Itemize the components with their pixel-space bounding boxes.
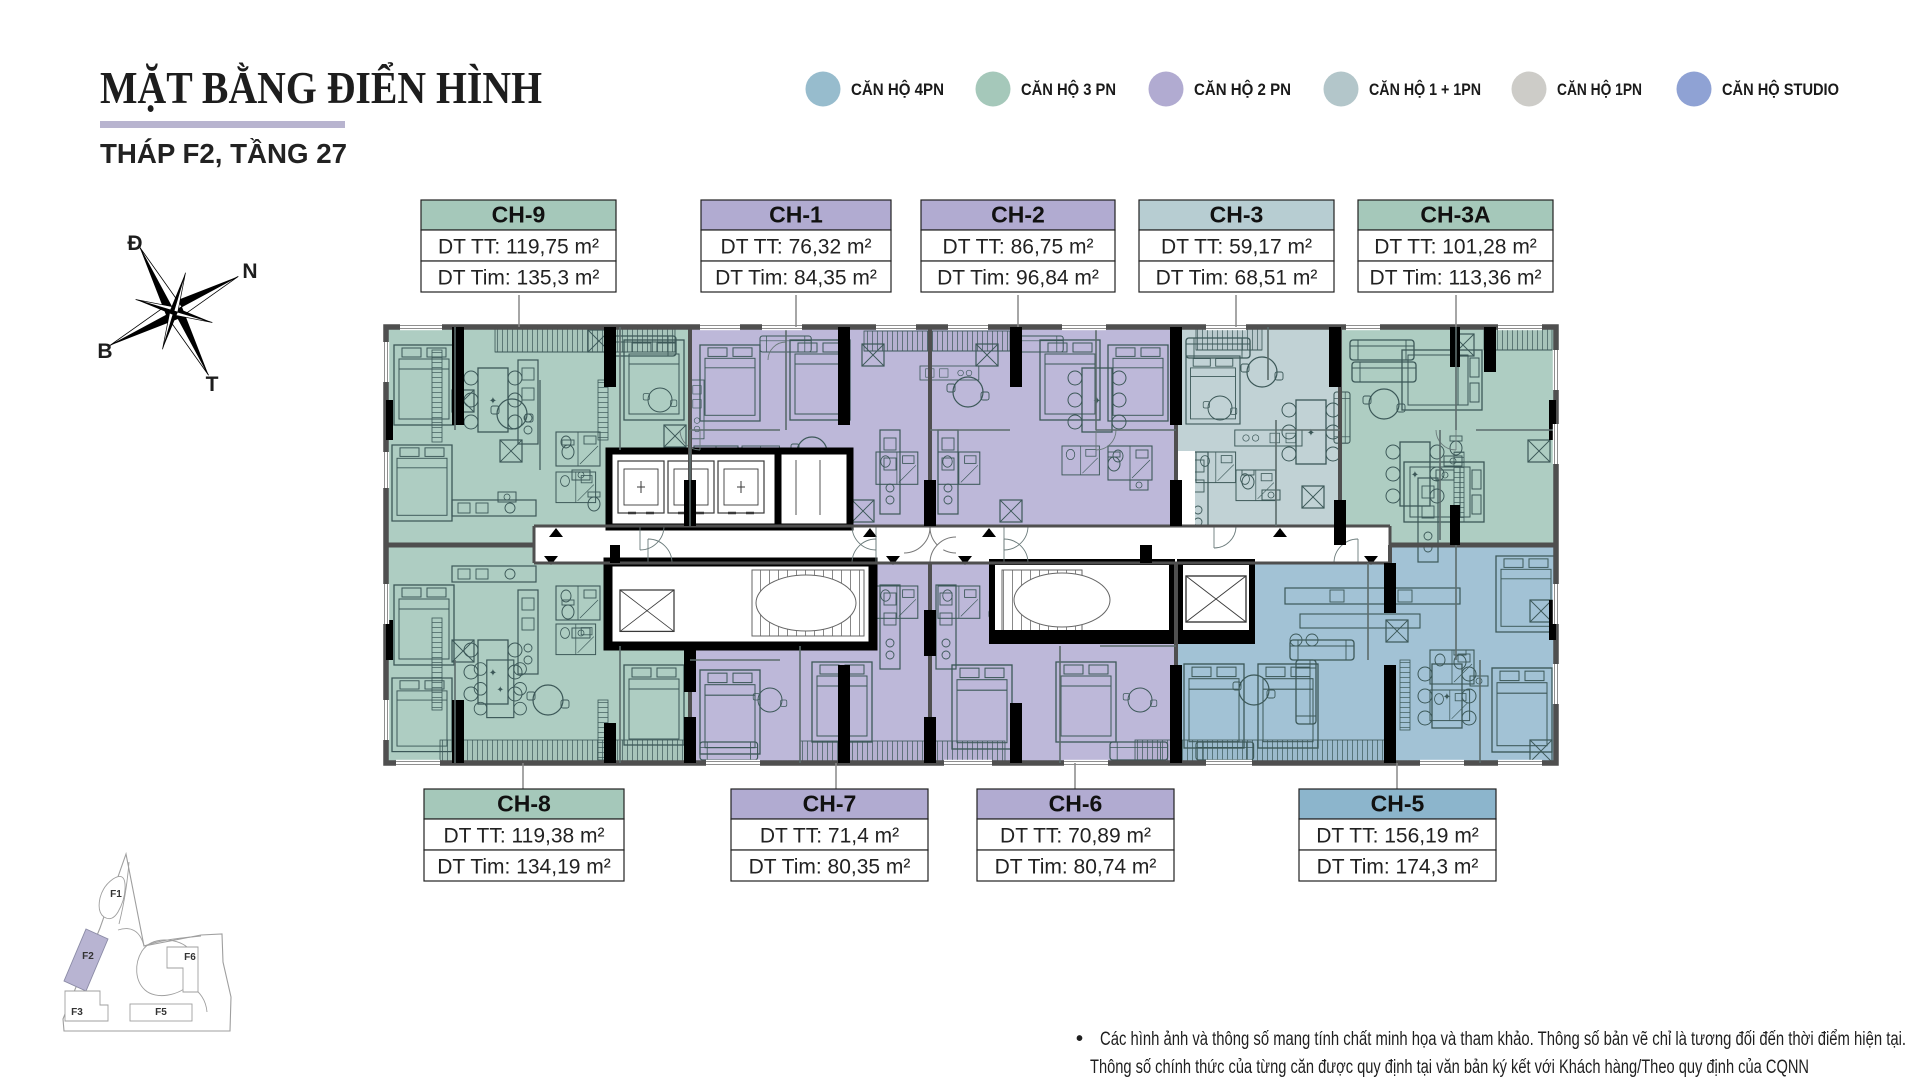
svg-text:DT Tim: 80,35 m²: DT Tim: 80,35 m²: [749, 856, 911, 879]
svg-text:CH-3A: CH-3A: [1420, 202, 1490, 228]
svg-text:F2: F2: [82, 951, 94, 962]
svg-text:F6: F6: [184, 952, 196, 963]
svg-text:F1: F1: [110, 889, 122, 900]
svg-text:MẶT BẰNG ĐIỂN HÌNH: MẶT BẰNG ĐIỂN HÌNH: [100, 61, 542, 113]
svg-text:F3: F3: [71, 1007, 83, 1018]
svg-text:CĂN HỘ 2 PN: CĂN HỘ 2 PN: [1194, 80, 1291, 99]
svg-text:F5: F5: [155, 1007, 167, 1018]
svg-text:DT Tim: 68,51 m²: DT Tim: 68,51 m²: [1156, 267, 1318, 290]
svg-text:DT Tim: 174,3 m²: DT Tim: 174,3 m²: [1317, 856, 1479, 879]
svg-text:DT Tim: 96,84 m²: DT Tim: 96,84 m²: [937, 267, 1099, 290]
svg-text:DT Tim: 84,35 m²: DT Tim: 84,35 m²: [715, 267, 877, 290]
svg-text:CH-7: CH-7: [803, 791, 857, 817]
svg-text:CH-3: CH-3: [1210, 202, 1264, 228]
svg-text:CĂN HỘ 3 PN: CĂN HỘ 3 PN: [1021, 80, 1116, 99]
svg-text:CĂN HỘ STUDIO: CĂN HỘ STUDIO: [1722, 80, 1839, 99]
svg-text:Thông số chính thức của từng c: Thông số chính thức của từng căn được qu…: [1090, 1057, 1809, 1078]
svg-text:DT Tim: 113,36 m²: DT Tim: 113,36 m²: [1370, 267, 1542, 290]
svg-text:•: •: [1076, 1028, 1083, 1050]
svg-text:Các hình ảnh và thông số mang: Các hình ảnh và thông số mang tính chất …: [1100, 1029, 1906, 1050]
svg-text:CH-6: CH-6: [1049, 791, 1103, 817]
svg-text:DT TT: 156,19 m²: DT TT: 156,19 m²: [1316, 825, 1479, 848]
svg-text:CĂN HỘ 4PN: CĂN HỘ 4PN: [851, 80, 944, 99]
svg-text:CĂN HỘ 1 + 1PN: CĂN HỘ 1 + 1PN: [1369, 80, 1481, 99]
svg-text:DT TT: 76,32 m²: DT TT: 76,32 m²: [721, 236, 872, 259]
svg-text:CH-8: CH-8: [497, 791, 551, 817]
svg-text:CH-2: CH-2: [991, 202, 1045, 228]
svg-text:DT TT: 70,89 m²: DT TT: 70,89 m²: [1000, 825, 1151, 848]
svg-text:B: B: [97, 340, 112, 363]
svg-text:T: T: [206, 373, 219, 396]
svg-text:DT TT: 71,4 m²: DT TT: 71,4 m²: [760, 825, 899, 848]
svg-text:DT Tim: 134,19 m²: DT Tim: 134,19 m²: [437, 856, 611, 879]
svg-text:CH-9: CH-9: [492, 202, 546, 228]
svg-text:DT TT: 59,17 m²: DT TT: 59,17 m²: [1161, 236, 1312, 259]
svg-text:DT TT: 119,38 m²: DT TT: 119,38 m²: [443, 825, 604, 848]
svg-text:N: N: [242, 260, 257, 283]
svg-text:CH-5: CH-5: [1371, 791, 1425, 817]
svg-text:CĂN HỘ 1PN: CĂN HỘ 1PN: [1557, 80, 1642, 99]
svg-text:DT Tim: 80,74 m²: DT Tim: 80,74 m²: [995, 856, 1157, 879]
svg-text:CH-1: CH-1: [769, 202, 823, 228]
svg-text:Đ: Đ: [127, 232, 142, 255]
svg-text:DT TT: 119,75 m²: DT TT: 119,75 m²: [438, 236, 599, 259]
svg-text:DT TT: 86,75 m²: DT TT: 86,75 m²: [943, 236, 1094, 259]
svg-text:DT Tim: 135,3 m²: DT Tim: 135,3 m²: [438, 267, 600, 290]
svg-text:THÁP F2, TẦNG 27: THÁP F2, TẦNG 27: [100, 138, 347, 169]
svg-text:DT TT: 101,28 m²: DT TT: 101,28 m²: [1374, 236, 1537, 259]
